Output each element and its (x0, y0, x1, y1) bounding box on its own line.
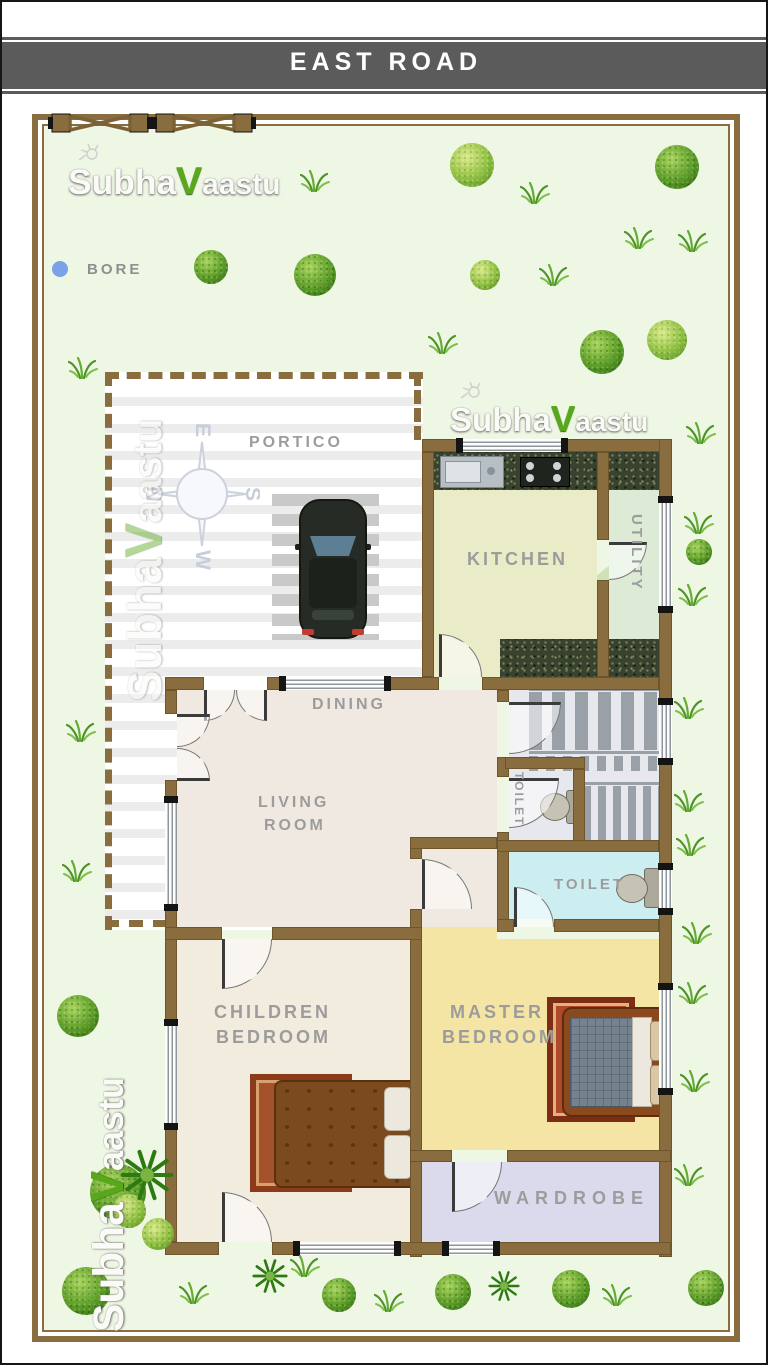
window-icon (659, 497, 672, 612)
grass-tuft-icon (539, 264, 569, 291)
wall-segment (482, 677, 659, 690)
children-bedroom-label: BEDROOM (216, 1027, 331, 1048)
grass-tuft-icon (674, 1164, 704, 1191)
stove-icon (520, 457, 570, 487)
brand-text: Subha (68, 162, 176, 202)
toilet-lower-label: TOILET (554, 876, 625, 893)
wall-segment (505, 757, 585, 769)
palm-tree-icon (488, 1270, 520, 1302)
grass-tuft-icon (674, 697, 704, 724)
bed-icon (274, 1080, 418, 1188)
brand-text: aastu (202, 168, 280, 201)
bore-well-icon (52, 261, 68, 277)
wall-segment (410, 939, 422, 1257)
wall-segment (272, 1242, 294, 1255)
compass-west: W (191, 550, 214, 570)
stair-rail (529, 751, 659, 754)
bore-label: BORE (87, 261, 142, 278)
window-icon (457, 439, 567, 452)
grass-tuft-icon (678, 584, 708, 611)
window-icon (165, 797, 177, 910)
grass-tuft-icon (290, 1255, 320, 1282)
wall-segment (499, 1242, 671, 1255)
road-center-dashes (16, 96, 246, 105)
grass-tuft-icon (680, 1070, 710, 1097)
grass-tuft-icon (678, 982, 708, 1009)
window-icon (294, 1242, 400, 1255)
grass-tuft-icon (374, 1290, 404, 1317)
grass-tuft-icon (68, 357, 98, 384)
window-icon (165, 1020, 177, 1129)
grass-tuft-icon (66, 720, 96, 747)
grass-tuft-icon (179, 1282, 209, 1309)
tree-icon (194, 250, 228, 284)
gate-icon (44, 106, 294, 140)
living-room-label: LIVING (258, 794, 329, 812)
window-icon (659, 984, 672, 1094)
brand-logo-vertical: SubhaVaastu (80, 1077, 134, 1332)
window-icon (280, 677, 390, 690)
tree-icon (450, 143, 494, 187)
tree-icon (552, 1270, 590, 1308)
master-bedroom-label: MASTER (450, 1002, 544, 1023)
window-icon (659, 699, 672, 764)
wall-segment (165, 780, 177, 797)
road-center-dashes (526, 96, 756, 105)
brand-logo: SubhaVaastu (68, 160, 281, 204)
window-icon (659, 864, 672, 914)
wall-segment (554, 919, 659, 932)
road-edge-line (2, 89, 768, 91)
tree-icon (322, 1278, 356, 1312)
tree-icon (435, 1274, 471, 1310)
sink-icon (440, 456, 504, 488)
grass-tuft-icon (676, 834, 706, 861)
grass-tuft-icon (674, 790, 704, 817)
grass-tuft-icon (682, 922, 712, 949)
stairs-lower-flight (583, 786, 659, 846)
children-bedroom-label: CHILDREN (214, 1002, 331, 1023)
wall-segment (272, 927, 422, 940)
compass-south: S (241, 487, 260, 501)
grass-tuft-icon (602, 1284, 632, 1311)
wall-segment (390, 677, 439, 690)
wall-segment (165, 927, 222, 940)
tree-icon (142, 1218, 174, 1250)
palm-tree-icon (252, 1258, 288, 1294)
living-room-label: ROOM (264, 817, 326, 835)
portico-dashed-bottom (105, 920, 167, 927)
brand-text: Subha (450, 402, 551, 439)
dining-label: DINING (312, 696, 386, 714)
floor-plan-canvas: EAST ROAD Subhavaastu E S W N (0, 0, 768, 1365)
car-icon (295, 496, 371, 642)
grass-tuft-icon (62, 860, 92, 887)
wall-segment (597, 580, 609, 677)
road-edge-line (2, 40, 768, 42)
grass-tuft-icon (300, 170, 330, 197)
kitchen-label: KITCHEN (467, 549, 568, 570)
grass-tuft-icon (684, 512, 714, 539)
tree-icon (647, 320, 687, 360)
portico-dashed-right (414, 372, 421, 440)
grass-tuft-icon (428, 332, 458, 359)
wall-segment (497, 919, 514, 932)
tree-icon (470, 260, 500, 290)
brand-watermark-vertical: SubhaVaastu (114, 419, 174, 702)
tree-icon (57, 995, 99, 1037)
wall-segment (507, 1150, 671, 1162)
wall-segment (497, 840, 659, 852)
wall-segment (410, 837, 497, 849)
sun-doodle-icon (458, 380, 484, 402)
tree-icon (686, 539, 712, 565)
wall-segment (165, 1242, 219, 1255)
stair-rail (583, 782, 659, 785)
tree-icon (294, 254, 336, 296)
grass-tuft-icon (624, 227, 654, 254)
master-bedroom-label: BEDROOM (442, 1027, 557, 1048)
window-icon (443, 1242, 499, 1255)
brand-text: aastu (575, 406, 648, 437)
utility-counter (609, 452, 659, 490)
leaf-v-icon: V (176, 160, 202, 203)
sun-doodle-icon (76, 142, 102, 164)
brand-logo: SubhaVaastu (450, 398, 648, 440)
wall-segment (497, 690, 509, 702)
tree-icon (655, 145, 699, 189)
compass-east: E (191, 423, 214, 437)
wall-segment (410, 1150, 452, 1162)
wall-segment (597, 452, 609, 540)
kitchen-counter (500, 639, 597, 677)
utility-label: UTILITY (628, 514, 645, 592)
wall-segment (422, 452, 434, 677)
grass-tuft-icon (520, 182, 550, 209)
wardrobe-label: WARDROBE (494, 1188, 649, 1209)
road-name-label: EAST ROAD (2, 48, 768, 77)
wall-segment (400, 1242, 443, 1255)
utility-counter (609, 639, 659, 677)
tree-icon (580, 330, 624, 374)
bed-icon (562, 1007, 672, 1117)
tree-icon (688, 1270, 724, 1306)
toilet-upper-label: TOILET (512, 772, 526, 826)
portico-label: PORTICO (249, 434, 343, 452)
grass-tuft-icon (686, 422, 716, 449)
leaf-v-icon: V (551, 398, 575, 439)
grass-tuft-icon (678, 230, 708, 257)
